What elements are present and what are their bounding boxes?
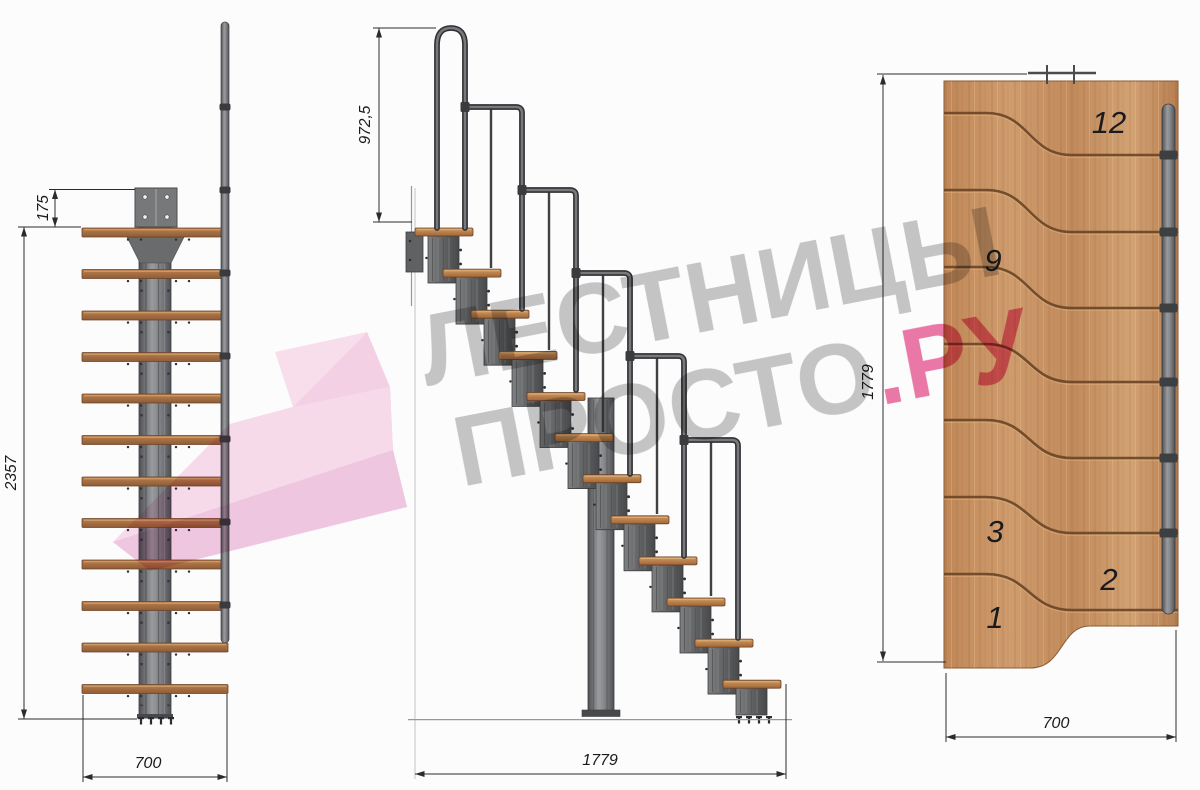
pole-connector	[220, 104, 231, 111]
plate-hole	[143, 195, 147, 199]
dim-label-175: 175	[35, 195, 52, 221]
pole-connector	[220, 353, 231, 360]
pole-connector	[220, 602, 231, 609]
step-label-12: 12	[1092, 105, 1126, 140]
dim-label-700-plan: 700	[1043, 715, 1070, 732]
dim-label-2357: 2357	[3, 454, 20, 491]
column-base-flange	[582, 710, 620, 717]
dim-label-1779-side: 1779	[582, 752, 618, 769]
staircase-technical-drawing: 175 2357 700	[0, 0, 1200, 790]
pole-connector	[220, 187, 231, 194]
plate-hole	[143, 215, 147, 219]
plate-hole	[165, 195, 169, 199]
step-label-3: 3	[986, 514, 1003, 549]
plate-hole	[165, 215, 169, 219]
dim-label-9725: 972,5	[357, 105, 374, 144]
drawing-canvas: 175 2357 700	[0, 0, 1200, 790]
step-label-2: 2	[1099, 562, 1117, 597]
step-label-1: 1	[986, 600, 1003, 635]
pole-connector	[220, 270, 231, 277]
wall-bracket-side	[406, 232, 423, 272]
dim-label-700-front: 700	[135, 755, 162, 772]
